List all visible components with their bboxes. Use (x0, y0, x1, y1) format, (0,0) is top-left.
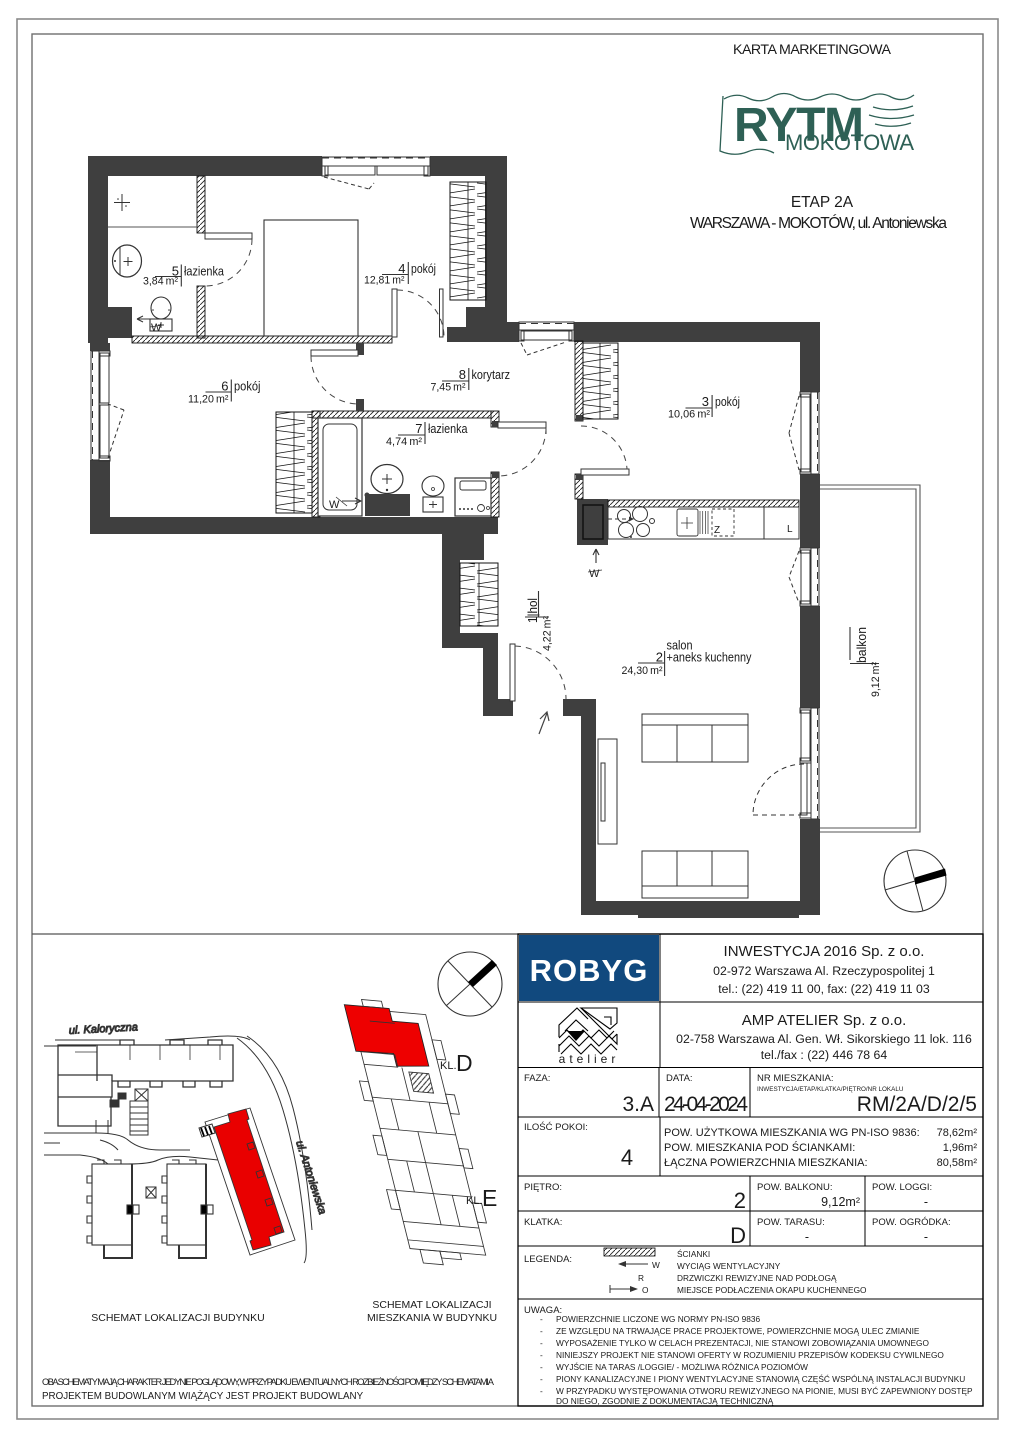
svg-text:RM/2A/D/2/5: RM/2A/D/2/5 (857, 1093, 977, 1116)
svg-text:POW. UŻYTKOWA MIESZKANIA WG PN: POW. UŻYTKOWA MIESZKANIA WG PN-ISO 9836: (664, 1126, 920, 1139)
svg-text:PIONY KANALIZACYJNE I PIONY WE: PIONY KANALIZACYJNE I PIONY WENTYLACYJNE… (556, 1373, 965, 1384)
svg-text:4,74 m²: 4,74 m² (386, 436, 422, 448)
svg-text:łazienka: łazienka (428, 421, 468, 436)
svg-text:-: - (805, 1230, 809, 1244)
svg-text:-: - (924, 1230, 928, 1244)
svg-text:-: - (540, 1338, 543, 1348)
svg-text:2: 2 (734, 1188, 746, 1213)
svg-text:-: - (540, 1326, 543, 1336)
svg-text:KL.: KL. (466, 1195, 483, 1207)
svg-text:LEGENDA:: LEGENDA: (524, 1254, 572, 1265)
svg-text:W: W (589, 568, 600, 580)
svg-text:W: W (151, 322, 162, 334)
svg-text:-: - (540, 1350, 543, 1360)
svg-text:ŚCIANKI: ŚCIANKI (677, 1248, 710, 1259)
svg-text:DO NIEGO, ZGODNIE Z DOKUMENTAC: DO NIEGO, ZGODNIE Z DOKUMENTACJĄ TECHNIC… (556, 1396, 774, 1406)
svg-text:9,12m²: 9,12m² (821, 1195, 860, 1209)
svg-text:6: 6 (221, 379, 228, 394)
svg-text:łazienka: łazienka (184, 264, 225, 279)
svg-text:24-04-2024: 24-04-2024 (664, 1093, 748, 1116)
svg-text:SCHEMAT LOKALIZACJI: SCHEMAT LOKALIZACJI (372, 1299, 491, 1311)
svg-text:3.A: 3.A (622, 1093, 654, 1116)
svg-text:MIEJSCE PODŁACZENIA OKAPU KUCH: MIEJSCE PODŁACZENIA OKAPU KUCHENNEGO (677, 1285, 867, 1295)
svg-text:MIESZKANIA W BUDYNKU: MIESZKANIA W BUDYNKU (367, 1312, 497, 1324)
svg-text:balkon: balkon (854, 627, 869, 663)
svg-text:NR MIESZKANIA:: NR MIESZKANIA: (757, 1073, 834, 1084)
svg-text:MOKOTOWA: MOKOTOWA (785, 130, 914, 155)
svg-text:Z: Z (714, 525, 720, 536)
svg-text:WYJŚCIE NA TARAS /LOGGIE/ - MO: WYJŚCIE NA TARAS /LOGGIE/ - MOŻLIWA RÓŻN… (556, 1361, 808, 1372)
svg-text:-: - (540, 1314, 543, 1324)
svg-text:SCHEMAT LOKALIZACJI BUDYNKU: SCHEMAT LOKALIZACJI BUDYNKU (91, 1312, 264, 1324)
svg-text:O: O (642, 1285, 649, 1295)
svg-text:W: W (329, 499, 340, 511)
svg-text:L: L (787, 524, 793, 535)
svg-text:pokój: pokój (411, 261, 436, 276)
svg-text:-: - (540, 1386, 543, 1396)
svg-text:tel./fax : (22) 446 78 64: tel./fax : (22) 446 78 64 (761, 1048, 888, 1062)
svg-text:8: 8 (459, 367, 466, 382)
svg-text:9,12 m²: 9,12 m² (870, 662, 882, 697)
svg-text:7: 7 (415, 421, 422, 436)
svg-text:pokój: pokój (715, 394, 740, 409)
svg-text:02-972 Warszawa Al. Rzeczyposp: 02-972 Warszawa Al. Rzeczypospolitej 1 (713, 964, 935, 978)
svg-text:4,22 m²: 4,22 m² (542, 616, 554, 651)
svg-text:12,81 m²: 12,81 m² (364, 275, 405, 287)
svg-text:PROJEKTEM BUDOWLANYM WIĄŻĄCY J: PROJEKTEM BUDOWLANYM WIĄŻĄCY JEST PROJEK… (42, 1391, 364, 1402)
svg-text:ILOŚĆ POKOI:: ILOŚĆ POKOI: (524, 1121, 588, 1133)
svg-text:80,58m²: 80,58m² (937, 1157, 978, 1169)
svg-text:2: 2 (656, 650, 663, 665)
svg-text:ŁĄCZNA POWIERZCHNIA MIESZKANIA: ŁĄCZNA POWIERZCHNIA MIESZKANIA: (664, 1157, 868, 1169)
svg-text:FAZA:: FAZA: (524, 1073, 550, 1084)
svg-text:ROBYG: ROBYG (530, 953, 649, 988)
svg-text:atelier: atelier (559, 1052, 620, 1066)
svg-text:-: - (540, 1362, 543, 1372)
svg-text:KL.: KL. (440, 1060, 457, 1072)
svg-text:NINIEJSZY PROJEKT NIE STANOWI: NINIEJSZY PROJEKT NIE STANOWI OFERTY W R… (556, 1350, 944, 1360)
svg-text:POW. LOGGI:: POW. LOGGI: (872, 1182, 932, 1193)
svg-text:POW. TARASU:: POW. TARASU: (757, 1217, 825, 1228)
svg-text:POW. MIESZKANIA POD ŚCIANKAMI:: POW. MIESZKANIA POD ŚCIANKAMI: (664, 1141, 855, 1154)
svg-text:W: W (652, 1260, 660, 1270)
svg-text:-: - (540, 1374, 543, 1384)
svg-text:R: R (638, 1273, 644, 1283)
svg-text:INWESTYCJA 2016 Sp. z o.o.: INWESTYCJA 2016 Sp. z o.o. (724, 943, 925, 960)
svg-text:11,20 m²: 11,20 m² (188, 394, 229, 406)
svg-text:7,45 m²: 7,45 m² (431, 382, 466, 394)
svg-text:PIĘTRO:: PIĘTRO: (524, 1182, 562, 1193)
svg-text:POW. BALKONU:: POW. BALKONU: (757, 1182, 833, 1193)
svg-text:ETAP 2A: ETAP 2A (791, 194, 854, 211)
svg-text:-: - (924, 1195, 928, 1209)
svg-text:02-758 Warszawa Al. Gen. Wł. S: 02-758 Warszawa Al. Gen. Wł. Sikorskiego… (676, 1032, 972, 1046)
svg-text:3: 3 (702, 394, 709, 409)
svg-text:OBA SCHEMATY MAJĄ CHARAKTER JE: OBA SCHEMATY MAJĄ CHARAKTER JEDYNIE POGL… (42, 1376, 495, 1387)
svg-text:4: 4 (621, 1145, 633, 1170)
svg-text:DRZWICZKI REWIZYJNE NAD PODŁOG: DRZWICZKI REWIZYJNE NAD PODŁOGĄ (677, 1273, 837, 1283)
svg-text:AMP ATELIER Sp. z o.o.: AMP ATELIER Sp. z o.o. (742, 1012, 907, 1029)
svg-text:tel.: (22) 419 11 00, fax: (22: tel.: (22) 419 11 00, fax: (22) 419 11 0… (718, 982, 930, 996)
svg-text:D: D (730, 1223, 746, 1248)
svg-text:korytarz: korytarz (472, 367, 511, 382)
svg-text:KARTA MARKETINGOWA: KARTA MARKETINGOWA (733, 42, 892, 58)
svg-text:WYPOSAŻENIE TYLKO W CELACH PRE: WYPOSAŻENIE TYLKO W CELACH PREZENTACJI, … (556, 1338, 929, 1348)
svg-text:78,62m²: 78,62m² (937, 1127, 978, 1139)
svg-text:POWIERZCHNIE LICZONE WG NORMY: POWIERZCHNIE LICZONE WG NORMY PN-ISO 983… (556, 1314, 760, 1324)
svg-text:E: E (482, 1185, 497, 1211)
svg-text:DATA:: DATA: (666, 1073, 693, 1084)
svg-text:W PRZYPADKU WYSTĘPOWANIA OTWOR: W PRZYPADKU WYSTĘPOWANIA OTWORU REWIZYJN… (556, 1386, 973, 1396)
svg-text:pokój: pokój (234, 379, 261, 394)
svg-text:WYCIĄG WENTYLACYJNY: WYCIĄG WENTYLACYJNY (677, 1261, 781, 1271)
svg-text:INWESTYCJA/ETAP/KLATKA/PIĘTRO/: INWESTYCJA/ETAP/KLATKA/PIĘTRO/NR LOKALU (757, 1086, 904, 1093)
svg-text:WARSZAWA - MOKOTÓW, ul. Antoni: WARSZAWA - MOKOTÓW, ul. Antoniewska (690, 215, 947, 232)
svg-text:KLATKA:: KLATKA: (524, 1217, 562, 1228)
svg-text:24,30 m²: 24,30 m² (622, 665, 663, 677)
svg-text:10,06 m²: 10,06 m² (668, 409, 710, 421)
svg-text:ZE WZGLĘDU NA TRWAJĄCE PRACE P: ZE WZGLĘDU NA TRWAJĄCE PRACE PROJEKTOWE,… (556, 1326, 920, 1336)
svg-text:1,96m²: 1,96m² (943, 1142, 978, 1154)
svg-text:+aneks kuchenny: +aneks kuchenny (667, 650, 752, 665)
svg-text:3,84 m²: 3,84 m² (143, 276, 178, 288)
svg-text:1|hol: 1|hol (525, 598, 540, 623)
svg-text:POW. OGRÓDKA:: POW. OGRÓDKA: (872, 1217, 951, 1228)
svg-text:D: D (456, 1050, 473, 1076)
